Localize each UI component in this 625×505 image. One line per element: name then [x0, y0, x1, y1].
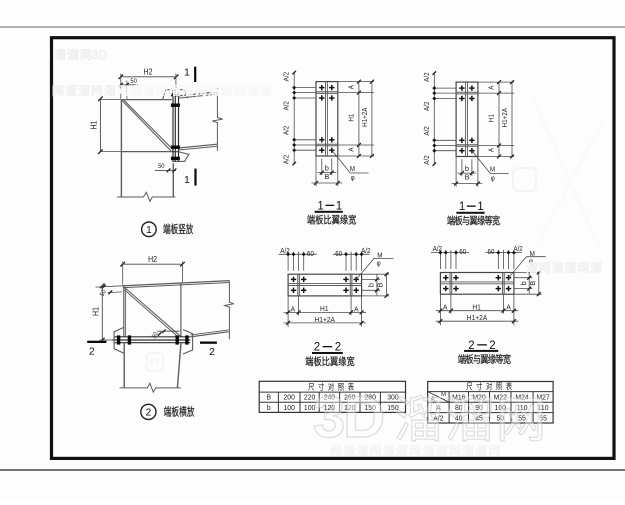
- svg-text:1: 1: [146, 225, 152, 236]
- svg-text:H1: H1: [91, 307, 101, 316]
- svg-text:1: 1: [317, 200, 323, 212]
- svg-text:b: b: [367, 283, 376, 287]
- svg-text:3D: 3D: [92, 48, 108, 62]
- svg-text:A: A: [354, 306, 359, 313]
- svg-text:M: M: [377, 252, 382, 259]
- svg-text:φ: φ: [491, 175, 496, 182]
- svg-text:200: 200: [284, 392, 295, 401]
- svg-text:B: B: [376, 282, 385, 287]
- svg-text:B: B: [528, 281, 537, 286]
- svg-text:H1: H1: [320, 306, 329, 313]
- svg-text:H1+2A: H1+2A: [361, 107, 369, 127]
- svg-text:A/2: A/2: [361, 248, 371, 256]
- svg-text:A: A: [506, 304, 511, 311]
- svg-text:1: 1: [477, 201, 483, 213]
- svg-text:A/2: A/2: [513, 246, 523, 254]
- svg-text:H1: H1: [488, 114, 496, 122]
- svg-text:1: 1: [336, 200, 342, 212]
- svg-text:2: 2: [335, 342, 341, 354]
- svg-text:1: 1: [184, 174, 190, 186]
- svg-text:H1+2A: H1+2A: [314, 317, 335, 324]
- svg-text:A/2: A/2: [423, 155, 431, 165]
- svg-text:H2: H2: [144, 67, 153, 77]
- svg-text:60: 60: [335, 251, 342, 259]
- svg-text:2: 2: [209, 346, 215, 358]
- svg-text:B: B: [267, 392, 272, 401]
- svg-text:3D: 3D: [313, 385, 383, 450]
- svg-text:A/2: A/2: [423, 72, 431, 82]
- svg-text:A: A: [443, 304, 448, 311]
- svg-text:A/2: A/2: [283, 126, 291, 136]
- svg-text:A: A: [291, 306, 296, 313]
- svg-text:A: A: [348, 147, 356, 152]
- svg-text:b: b: [519, 281, 528, 285]
- svg-text:M: M: [350, 166, 355, 173]
- svg-text:A/2: A/2: [423, 101, 431, 111]
- svg-text:M: M: [530, 251, 535, 258]
- svg-text:H1: H1: [89, 121, 99, 130]
- svg-text:60: 60: [488, 249, 495, 257]
- svg-text:H2: H2: [148, 254, 157, 264]
- svg-text:M: M: [490, 166, 495, 173]
- svg-text:1: 1: [459, 201, 465, 213]
- svg-text:60: 60: [459, 249, 466, 257]
- svg-text:50: 50: [130, 78, 137, 86]
- svg-text:300: 300: [387, 392, 398, 401]
- svg-text:A: A: [488, 148, 496, 153]
- svg-text:φ: φ: [351, 175, 356, 182]
- svg-text:H1+2A: H1+2A: [502, 108, 510, 128]
- svg-text:1: 1: [184, 67, 190, 79]
- svg-text:H1: H1: [472, 304, 481, 311]
- svg-text:b: b: [267, 402, 271, 411]
- svg-text:B: B: [465, 173, 470, 182]
- svg-text:60: 60: [307, 251, 314, 259]
- svg-text:H1+2A: H1+2A: [467, 315, 488, 322]
- svg-text:2: 2: [146, 408, 152, 419]
- svg-text:2: 2: [89, 346, 95, 358]
- svg-text:50: 50: [158, 163, 165, 171]
- svg-text:100: 100: [284, 402, 295, 411]
- svg-text:φ: φ: [377, 260, 382, 267]
- svg-text:A/2: A/2: [283, 155, 291, 165]
- svg-text:2: 2: [314, 342, 320, 354]
- svg-text:M: M: [441, 392, 446, 398]
- svg-text:A/2: A/2: [280, 248, 290, 256]
- svg-text:A: A: [488, 85, 496, 90]
- svg-text:A/2: A/2: [283, 72, 291, 82]
- svg-text:A: A: [348, 85, 356, 90]
- svg-text:A/2: A/2: [433, 246, 443, 254]
- svg-text:B: B: [324, 172, 329, 181]
- svg-text:A/2: A/2: [283, 101, 291, 111]
- svg-text:H1: H1: [348, 113, 356, 121]
- svg-text:A/2: A/2: [423, 126, 431, 136]
